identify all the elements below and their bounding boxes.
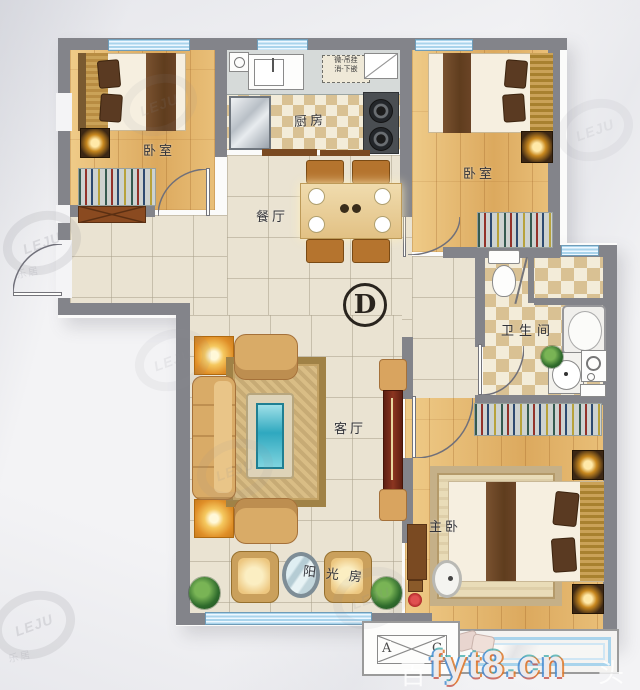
master-flower (408, 593, 422, 607)
master-chair-dot (448, 576, 453, 581)
master-door-arc (416, 398, 473, 458)
kitchen-note-line2: 消-下嵌 (334, 65, 357, 73)
sunroom-chair-left-cushion (238, 558, 270, 594)
washing-machine-drum (586, 356, 601, 371)
sofa-armchair-bottom (234, 498, 298, 544)
dining-dish-1 (340, 204, 349, 213)
wall-bathroom-west (475, 255, 485, 347)
wall-right-lower (603, 245, 617, 643)
tv-cabinet (383, 390, 403, 490)
kitchen-hob-circle (234, 57, 245, 68)
sunroom-plant-left (189, 577, 220, 609)
bathtub-basin (568, 311, 602, 351)
sofa-armchair-top (234, 334, 298, 380)
toilet-bowl (492, 265, 516, 297)
toilet-tank (488, 250, 520, 264)
leju-watermark-text-3: LEJU (138, 91, 181, 120)
dining-plate-2 (374, 188, 391, 205)
leju-watermark-text-4: LEJU (152, 346, 195, 375)
wall-bedroomtl-kitchen (215, 38, 227, 157)
fridge (229, 96, 271, 150)
bedroom-tl-pillow-2 (99, 93, 123, 122)
kitchen-sink-basin (254, 59, 284, 86)
ac-legend-letter-a: A (382, 641, 391, 656)
washing-machine-dial (587, 373, 595, 381)
unit-badge: D (343, 283, 387, 327)
master-bookshelf (474, 403, 602, 436)
dining-plate-3 (308, 216, 325, 233)
bedroom-tr-pillow-2 (502, 93, 526, 122)
site-watermark: fyt8.cn (430, 644, 566, 687)
master-door-leaf (412, 396, 416, 458)
master-pillow-2 (551, 537, 577, 573)
dining-chair-bottom-2 (352, 239, 390, 263)
dining-plate-1 (308, 188, 325, 205)
bathroom-door-leaf (478, 344, 482, 395)
site-watermark-back-right: 头 (598, 653, 624, 690)
floorplan-canvas: 微-吊挂 消-下嵌 D (0, 0, 640, 690)
bedroom-tl-label: 卧室 (143, 140, 175, 159)
dining-chair-top-1 (306, 160, 344, 184)
kitchen-label: 厨房 (293, 109, 326, 130)
stove-burner-2 (369, 127, 393, 151)
unit-badge-letter: D (354, 290, 377, 320)
dining-label: 餐厅 (256, 206, 288, 225)
kitchen-faucet (272, 58, 274, 72)
hall-right-floor (412, 256, 478, 398)
bedroom-tr-door-arc (408, 217, 460, 255)
bath-plant (541, 346, 563, 368)
bedroom-tl-bookshelf (78, 168, 156, 206)
leju-watermark-cn-2: 乐居 (7, 646, 34, 666)
master-chair (432, 560, 462, 598)
living-label: 客厅 (334, 418, 366, 437)
bath-low-cabinet (580, 384, 606, 397)
master-headboard-fur (580, 482, 604, 581)
bedroom-tr-nightstand-lamp (521, 131, 553, 163)
bedroom-tr-label: 卧室 (463, 163, 495, 182)
wall-kitchen-bedroomtr (400, 38, 412, 157)
master-pillow-1 (552, 491, 579, 527)
leju-watermark-text-5: LEJU (214, 456, 257, 485)
master-blanket (486, 482, 516, 581)
leju-watermark-text-7: LEJU (574, 116, 617, 145)
master-dresser (407, 524, 427, 580)
kitchen-counter-south-1 (262, 149, 317, 156)
bedroom-tr-window (415, 39, 473, 51)
stove-burner-1 (369, 99, 393, 123)
bedroom-tl-door-arc (158, 169, 208, 216)
tv-mount-bottom (379, 489, 407, 521)
master-label: 主卧 (429, 516, 461, 535)
dining-plate-4 (374, 216, 391, 233)
bedroom-tl-west-niche (56, 93, 72, 131)
bedroom-tl-pillow-1 (97, 59, 121, 89)
dining-chair-bottom-1 (306, 239, 344, 263)
bedroom-tl-window (108, 39, 190, 51)
wall-shower-west (528, 255, 534, 303)
bedroom-tr-blanket (443, 53, 471, 133)
tv-mount-top (379, 359, 407, 391)
master-nightstand-lamp-top (572, 450, 604, 480)
shower-window (561, 245, 599, 256)
bedroom-tr-pillow-1 (504, 59, 528, 89)
bath-sink-drain (564, 372, 568, 376)
leju-watermark-text-6: LEJU (350, 584, 393, 613)
kitchen-note-box: 微-吊挂 消-下嵌 (322, 55, 370, 83)
dining-dish-2 (352, 204, 361, 213)
bedroom-tr-headboard-fur (530, 53, 553, 133)
entry-door-leaf (13, 292, 62, 296)
wall-left-step (58, 303, 190, 315)
leju-watermark-text: LEJU (21, 229, 64, 258)
bathroom-label: 卫生间 (501, 320, 555, 339)
wall-shower-south (534, 298, 604, 305)
master-trinket (408, 580, 423, 592)
site-watermark-back-left: 百 (400, 655, 426, 690)
bedroom-tl-door-leaf (206, 168, 210, 216)
hall-left-floor (70, 215, 227, 315)
bedroom-tr-door-leaf (403, 216, 406, 257)
bedroom-tl-nightstand-lamp (80, 128, 110, 158)
tv-screen-line (391, 398, 393, 480)
kitchen-counter-south-2 (320, 150, 370, 156)
bathroom-door-arc (482, 346, 524, 395)
leju-watermark-text-2: LEJU (13, 611, 56, 640)
dining-chair-top-2 (352, 160, 390, 184)
bedroom-tl-cabinet (78, 206, 146, 223)
kitchen-board (364, 53, 398, 79)
kitchen-note-line1: 微-吊挂 (334, 56, 357, 64)
bedroom-tr-bookshelf (477, 212, 553, 248)
master-nightstand-lamp-bottom (572, 584, 604, 614)
